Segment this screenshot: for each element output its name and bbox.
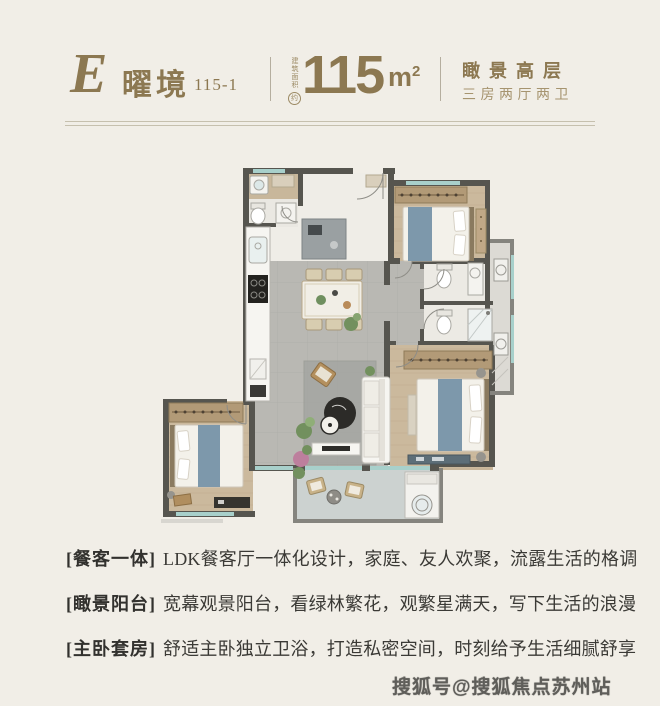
feature-list: [餐客一体] LDK餐客厅一体化设计，家庭、友人欢聚，流露生活的格调 [瞰景阳台… — [66, 548, 611, 683]
area-unit-exponent: 2 — [412, 63, 420, 80]
feature-tag: [餐客一体] — [66, 548, 156, 570]
tv-icon — [322, 446, 350, 451]
nightstand — [476, 368, 486, 378]
kitchen — [246, 227, 270, 401]
dresser — [476, 209, 486, 253]
floor-plan — [158, 163, 518, 537]
area-value: 115 — [302, 44, 383, 106]
living-area — [304, 361, 390, 465]
washer-icon — [254, 180, 264, 190]
feature-desc: 宽幕观景阳台，看绿林繁花，观繁星满天，写下生活的浪漫 — [163, 593, 636, 615]
watermark: 搜狐号@搜狐焦点苏州站 — [392, 672, 612, 699]
balcony-table — [327, 490, 341, 504]
header-divider-2 — [440, 57, 441, 101]
feature-desc: LDK餐客厅一体化设计，家庭、友人欢聚，流露生活的格调 — [163, 548, 637, 570]
area-prefix: 建筑面积 约 — [288, 57, 301, 105]
area-prefix-label: 建筑面积 — [290, 57, 299, 89]
dining-area — [302, 269, 362, 331]
washer-icon — [412, 495, 432, 515]
feature-row-master-suite: [主卧套房] 舒适主卧独立卫浴，打造私密空间，时刻给予生活细腻舒享 — [66, 638, 611, 660]
bench — [408, 395, 416, 435]
feature-desc: 舒适主卧独立卫浴，打造私密空间，时刻给予生活细腻舒享 — [163, 638, 636, 660]
feature-row-balcony: [瞰景阳台] 宽幕观景阳台，看绿林繁花，观繁星满天，写下生活的浪漫 — [66, 593, 611, 615]
nightstand — [476, 452, 486, 462]
unit-name: 曜境 — [122, 60, 190, 104]
dining-table — [302, 281, 362, 319]
feature-subtitle: 三房两厅两卫 — [462, 84, 573, 104]
bench — [173, 494, 191, 506]
feature-tag: [主卧套房] — [66, 638, 156, 660]
feature-tag: [瞰景阳台] — [66, 593, 156, 615]
unit-code: 115-1 — [194, 75, 238, 95]
unit-letter: E — [70, 42, 107, 106]
stove-icon — [248, 275, 268, 303]
toilet-icon — [251, 208, 265, 224]
feature-row-dining: [餐客一体] LDK餐客厅一体化设计，家庭、友人欢聚，流露生活的格调 — [66, 548, 611, 570]
feature-title: 瞰景高层 — [462, 57, 570, 83]
header-divider-1 — [270, 57, 271, 101]
toilet-icon — [437, 316, 451, 334]
plant-icon — [365, 366, 375, 376]
approx-circle-badge: 约 — [288, 92, 301, 105]
area-unit: m2 — [388, 62, 420, 93]
area-unit-base: m — [388, 62, 412, 92]
floorplan-flyer: E 曜境 115-1 建筑面积 约 115 m2 瞰景高层 三房两厅两卫 — [0, 0, 660, 706]
header-rule — [65, 121, 595, 126]
master-bedroom — [404, 351, 492, 464]
